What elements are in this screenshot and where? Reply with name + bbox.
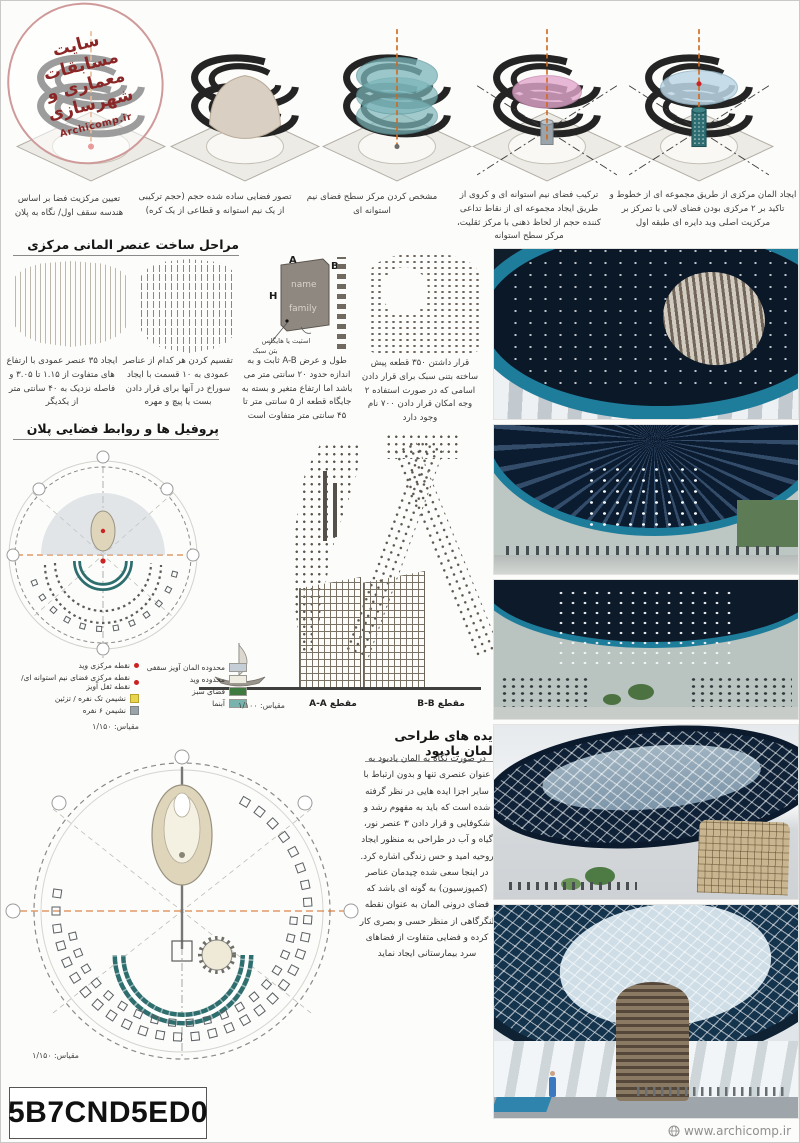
step-caption-2: تصور فضایی ساده شده حجم (حجم ترکیبی از ی…	[135, 191, 295, 219]
elevation-a	[299, 577, 361, 689]
legend-item: نشیمن تک نفره / تزئین	[7, 694, 139, 703]
render-floor	[494, 555, 798, 574]
render-1-oculus-interior	[493, 248, 799, 420]
gray-square-icon	[130, 706, 139, 715]
svg-text:H: H	[269, 291, 277, 302]
planter	[628, 684, 654, 700]
chairs-row	[509, 882, 637, 890]
green-band-icon	[229, 687, 247, 696]
legend-item: فضای سبز	[143, 687, 247, 696]
render-4-oval-ring	[493, 724, 799, 900]
site-plan	[1, 743, 363, 1061]
elevation-b	[363, 571, 425, 689]
legend-label: نشیمن ۶ نفره	[83, 706, 126, 715]
chairs-right	[689, 676, 792, 707]
section-b-scatter-top	[385, 433, 459, 459]
blue-carpet	[493, 1097, 551, 1112]
globe-icon	[668, 1125, 680, 1137]
yellow-square-icon	[130, 694, 139, 703]
sections-scale: مقیاس: ۱/۱۰۰	[215, 701, 285, 710]
plan-scale: مقیاس: ۱/۱۵۰	[7, 722, 139, 731]
competition-board: تعیین مرکزیت فضا بر اساس هندسه سقف اول/ …	[0, 0, 800, 1143]
step-caption-4: ترکیب فضای نیم استوانه ای و کروی از طریق…	[453, 189, 605, 244]
svg-text:name: name	[291, 280, 317, 290]
step-caption-3: مشخص کردن مرکز سطح فضای نیم استوانه ای	[297, 191, 447, 219]
chandelier-lights	[585, 464, 707, 530]
header-process: مراحل ساخت عنصر المانی مرکزی	[13, 237, 239, 256]
legend-label: فضای سبز	[192, 687, 225, 696]
legend-item: محدوده المان آویز سقفی	[143, 663, 247, 672]
legend-item: نقطه مرکزی وید	[7, 661, 139, 670]
section-bar	[333, 483, 337, 537]
submission-code-box: 5B7CND5ED0	[9, 1087, 207, 1139]
iso-diagram-step-5	[623, 23, 775, 185]
element-caption-1: ایجاد ۳۵ عنصر عمودی با ارتفاع های متفاوت…	[5, 355, 119, 410]
chairs-left	[500, 676, 591, 707]
red-dot-icon	[134, 680, 139, 685]
section-bar	[323, 471, 327, 541]
hanging-beads	[555, 588, 731, 669]
pale-band-icon	[229, 675, 247, 684]
render-floor	[494, 707, 798, 720]
section-b-label: مقطع B-B	[409, 699, 473, 709]
person-head	[550, 1071, 555, 1076]
diagram-block-chain	[337, 257, 346, 349]
legend-label: محدوده وید	[190, 675, 225, 684]
diagram-dotted-cylinder	[369, 253, 479, 353]
element-caption-2: تقسیم کردن هر کدام از عناصر عمودی به ۱۰ …	[121, 355, 235, 410]
diagram-vertical-elements	[15, 261, 127, 347]
header-profiles: پروفیل ها و روابط فضایی پلان	[13, 421, 219, 440]
iso-diagram-step-2	[169, 23, 321, 185]
svg-text:A: A	[289, 255, 297, 266]
legend-item: محدوده وید	[143, 675, 247, 684]
render-2-dome-hall	[493, 424, 799, 575]
person	[549, 1077, 556, 1097]
chairs-row	[506, 546, 786, 555]
section-a-label: مقطع A-A	[301, 699, 365, 709]
plan-diagram	[3, 443, 201, 663]
site-plan-scale: مقیاس: ۱/۱۵۰	[9, 1051, 79, 1060]
legend-item: نقطه مرکزی فضای نیم استوانه ای/ نقطه ثقل…	[7, 673, 139, 691]
red-dot-icon	[134, 663, 139, 668]
chairs-row	[637, 1087, 789, 1096]
wood-lattice-structure	[696, 819, 790, 895]
legend-label: نشیمن تک نفره / تزئین	[55, 694, 126, 703]
element-caption-4: قرار داشتن ۳۵۰ قطعه پیش ساخته بتنی سبک ب…	[361, 357, 479, 426]
submission-code: 5B7CND5ED0	[8, 1096, 208, 1130]
svg-text:family: family	[289, 304, 317, 314]
watermark-text: www.archicomp.ir	[684, 1124, 791, 1138]
green-wall	[737, 500, 798, 548]
legend-label: نقطه مرکزی فضای نیم استوانه ای/ نقطه ثقل…	[7, 673, 130, 691]
render-3-beads-room	[493, 579, 799, 720]
render-5-blue-ring-hall	[493, 904, 799, 1119]
plan-legend: نقطه مرکزی وید نقطه مرکزی فضای نیم استوا…	[7, 661, 139, 731]
blue-band-icon	[229, 663, 247, 672]
legend-label: نقطه مرکزی وید	[79, 661, 130, 670]
watermark: www.archicomp.ir	[668, 1124, 791, 1138]
iso-diagram-step-3	[321, 23, 473, 185]
diagram-segmented-elements	[141, 259, 237, 353]
detail-note-concrete: بتن سبک	[245, 347, 285, 355]
legend-item: نشیمن ۶ نفره	[7, 706, 139, 715]
detail-note-fastener: استیت یا هایگلس	[253, 337, 319, 345]
step-caption-1: تعیین مرکزیت فضا بر اساس هندسه سقف اول/ …	[5, 193, 133, 221]
legend-label: محدوده المان آویز سقفی	[147, 663, 225, 672]
ideas-paragraph: در صورت نگاه به المان یادبود به عنوان عن…	[357, 751, 497, 962]
iso-diagram-step-4	[471, 23, 623, 185]
element-caption-3: طول و عرض A-B ثابت و به اندازه حدود ۲۰ س…	[237, 355, 357, 424]
wood-slat-tower	[616, 982, 689, 1101]
step-caption-5: ایجاد المان مرکزی از طریق مجموعه ای از خ…	[609, 189, 797, 230]
planter	[603, 694, 621, 705]
